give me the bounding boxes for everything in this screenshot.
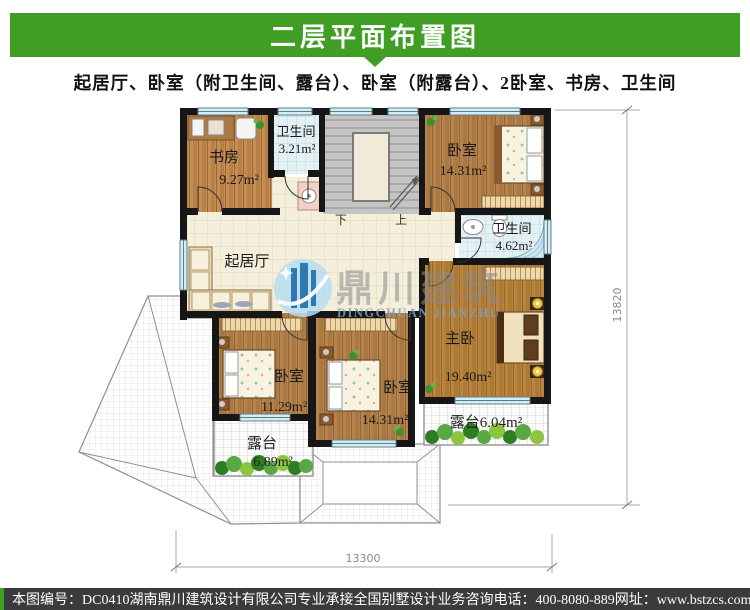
bath2-name: 卫生间 bbox=[492, 221, 531, 236]
bed-tr-area: 14.31m² bbox=[440, 164, 487, 179]
dim-height-label: 13820 bbox=[611, 288, 624, 323]
window bbox=[240, 414, 290, 421]
terrace-right-name: 露台 bbox=[450, 414, 480, 431]
window bbox=[198, 108, 248, 115]
header-pointer-triangle bbox=[364, 57, 386, 67]
study-name: 书房 bbox=[209, 149, 239, 166]
window bbox=[332, 440, 396, 447]
terrace-left-area: 6.89m² bbox=[253, 455, 293, 470]
bath1-name: 卫生间 bbox=[276, 124, 315, 139]
terrace-left: 露台 6.89m² bbox=[214, 418, 313, 476]
window bbox=[180, 240, 187, 290]
window bbox=[330, 108, 372, 115]
bed-bl-name: 卧室 bbox=[274, 368, 304, 385]
svg-text:露台6.04m²: 露台6.04m² bbox=[450, 414, 523, 431]
floor-plan: 13820 13300 露台 6.89m² 露台6.04m² bbox=[0, 96, 750, 588]
bed-tr-name: 卧室 bbox=[447, 142, 477, 159]
bed-tr-wardrobe bbox=[482, 196, 544, 208]
footer-website[interactable]: 网址：www.bstzcs.com bbox=[615, 589, 750, 609]
page-title: 二层平面布置图 bbox=[270, 17, 480, 54]
window bbox=[450, 108, 520, 115]
window bbox=[455, 397, 530, 404]
bed-bl-area: 11.29m² bbox=[261, 400, 307, 415]
watermark-en: DINGCHUAN JIANZHU bbox=[337, 306, 500, 320]
terrace-right: 露台6.04m² bbox=[424, 401, 548, 445]
terrace-left-name: 露台 bbox=[247, 435, 277, 452]
room-summary-subtitle: 起居厅、卧室（附卫生间、露台）、卧室（附露台）、2卧室、书房、卫生间 bbox=[0, 70, 750, 96]
floor-plan-svg: 13820 13300 露台 6.89m² 露台6.04m² bbox=[0, 96, 750, 588]
window bbox=[278, 108, 312, 115]
footer-bar: 本图编号：DC0410 湖南鼎川建筑设计有限公司专业承接全国别墅设计业务 咨询电… bbox=[0, 588, 750, 610]
bed-bm-area: 14.31m² bbox=[362, 413, 409, 428]
bath1-area: 3.21m² bbox=[279, 141, 316, 156]
bed-bl-wardrobe bbox=[222, 318, 302, 331]
window bbox=[388, 108, 418, 115]
footer-accent bbox=[0, 588, 4, 610]
footer-plan-number: 本图编号：DC0410 bbox=[12, 589, 129, 609]
bed-bm-name: 卧室 bbox=[383, 379, 413, 396]
stairs-up-label: 上 bbox=[395, 213, 407, 227]
corridor-washstand bbox=[298, 182, 320, 210]
watermark-cn: 鼎川建筑 bbox=[336, 268, 504, 310]
study-desk bbox=[188, 116, 256, 140]
master-name: 主卧 bbox=[445, 330, 475, 347]
header-bar: 二层平面布置图 bbox=[10, 13, 740, 57]
stairwell-core bbox=[353, 133, 389, 201]
living-name: 起居厅 bbox=[224, 253, 269, 270]
terrace-right-area: 6.04m² bbox=[480, 415, 523, 431]
footer-company: 湖南鼎川建筑设计有限公司专业承接全国别墅设计业务 bbox=[129, 589, 465, 609]
bed-tr-bed bbox=[495, 114, 544, 195]
window bbox=[544, 220, 551, 254]
bath2-area: 4.62m² bbox=[496, 238, 533, 253]
dimension-bottom: 13300 bbox=[171, 530, 557, 573]
watermark: 鼎川建筑 DINGCHUAN JIANZHU bbox=[274, 259, 504, 320]
master-area: 19.40m² bbox=[445, 370, 492, 385]
footer-phone: 咨询电话：400-8080-889 bbox=[465, 589, 614, 609]
page: { "header": { "title": "二层平面布置图", "accen… bbox=[0, 0, 750, 610]
stairs-down-label: 下 bbox=[335, 213, 347, 227]
study-area: 9.27m² bbox=[219, 173, 259, 188]
dim-width-label: 13300 bbox=[346, 552, 381, 565]
roof-porch bbox=[300, 444, 440, 523]
